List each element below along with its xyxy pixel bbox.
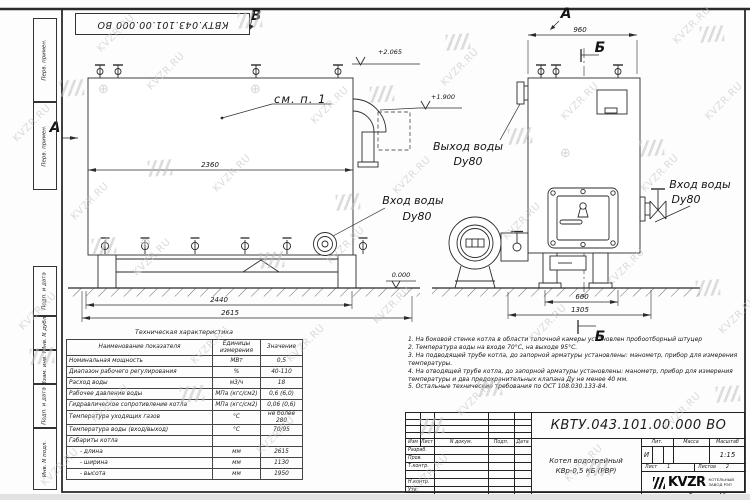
drawing-sheet: В А Б А Б см. п. 1 +2.065 +1.900 0.000 2… [0,0,750,500]
note-1: 1. На боковой стенке котла в области топ… [408,336,746,344]
sheet-cell: Лист 1 [645,463,694,471]
outlet-flange-front [500,82,528,140]
margin-box-3: Подп. и дата [33,266,57,316]
role-empty [408,470,434,478]
title-block: КВТУ.043.101.00.000 ВО Изм Лист N докум.… [405,412,745,493]
margin-box-7: Инв. N подл. [33,428,57,490]
inverted-doc-number-stamp: КВТУ.043.101.00.000 ВО [75,13,250,35]
company-name: КОТЕЛЬНЫЙ ЗАВОД РЭП [709,478,735,488]
section-b-top-label: Б [595,40,606,56]
role-tkontr: Т.контр. [408,462,434,470]
page-edge [0,494,750,500]
table-row: - высотамм1950 [67,469,303,480]
elevation-mid: +1.900 [431,93,455,101]
water-inlet-left-dn: Dy80 [403,210,432,223]
scale-header: Масштаб [709,438,746,446]
header-data: Дата [514,438,531,446]
lit-header: Лит. [641,438,673,446]
margin-box-4: Инв. N дубл. [33,316,57,350]
table-row: - ширинамм1130 [67,458,303,469]
header-list: Лист [420,438,434,446]
furnace-door [548,188,618,248]
header-podp: Подп. [488,438,514,446]
table-row: - длинамм2615 [67,447,303,458]
dim-2360-label: 2360 [201,161,219,169]
see-note-callout: см. п. 1 [274,92,326,106]
skid-front-view [539,253,612,288]
product-name: Котел водогрейный КВр-0,5 КБ (РВР) [531,438,641,494]
title-block-doc-number: КВТУ.043.101.00.000 ВО [531,413,746,438]
blower-fan [449,217,528,288]
header-ndoc: N докум. [434,438,488,446]
spec-col-name: Наименование показателя [67,340,213,356]
water-inlet-right-label: Вход воды [669,178,730,191]
water-outlet-dn: Dy80 [454,155,483,168]
spec-col-units: Единицы измерения [213,340,261,356]
margin-box-1: Перв. примен. [33,18,57,102]
note-4: 4. На отводящей трубе котла, до запорной… [408,368,746,384]
kvzr-logo-icon [653,477,665,489]
table-row: Габариты котла [67,436,303,447]
table-row: Рабочее давление водыМПа (кгс/см2)0,6 (6… [67,389,303,400]
role-prov: Пров. [408,454,434,462]
role-nkontr: Н.контр. [408,478,434,486]
sheets-cell: Листов 2 [698,463,746,471]
water-inlet-left-label: Вход воды [382,194,443,207]
technical-notes: 1. На боковой стенке котла в области топ… [408,336,746,391]
margin-box-5: Взам. инв. N [33,350,57,384]
dim-2440-label: 2440 [210,296,228,304]
table-row: Номинальная мощностьМВт0,5 [67,356,303,367]
view-a-top-label: А [561,6,572,22]
role-utv: Утв. [408,486,434,494]
water-outlet-label: Выход воды [433,140,503,153]
elevation-top: +2.065 [378,48,402,56]
inverted-doc-number: КВТУ.043.101.00.000 ВО [97,19,228,30]
table-row: Температура воды (вход/выход)°С70/95 [67,425,303,436]
dim-1305-label: 1305 [571,306,589,314]
top-valves-front-view [536,65,623,78]
lit-value: И [641,446,652,463]
boiler-side-view [68,57,462,322]
technical-characteristics-table: Техническая характеристика Наименование … [66,329,302,480]
dim-960-label: 960 [573,26,586,34]
water-inlet-right-dn: Dy80 [672,193,701,206]
dim-2615-label: 2615 [221,309,239,317]
note-5: 5. Остальные технические требования по О… [408,383,746,391]
mass-header: Масса [673,438,709,446]
table-row: Диапазон рабочего регулирования%40-110 [67,367,303,378]
table-row: Температура уходящих газов°Сне более 280 [67,411,303,425]
view-b-label: В [251,8,262,24]
margin-box-6: Подп. и дата [33,384,57,428]
note-3: 3. На подводящей трубе котла, до запорно… [408,352,746,368]
dim-660-label: 660 [575,293,588,301]
spec-col-value: Значение [261,340,303,356]
table-row: Гидравлическое сопротивление котлаМПа (к… [67,400,303,411]
margin-box-2: Перв. примен. [33,102,57,190]
elevation-zero: 0.000 [392,271,411,279]
top-valves-left-view [95,65,343,78]
kvzr-logo-text: KVZR [668,475,706,490]
scale-value: 1:15 [709,446,746,463]
company-logo-area: KVZR КОТЕЛЬНЫЙ ЗАВОД РЭП [641,471,746,494]
skid-left-view [98,255,356,288]
role-razrab: Разраб. [408,446,434,454]
table-row: Расход водым3/ч18 [67,378,303,389]
spec-table-title: Техническая характеристика [66,329,302,339]
elevation-marks [352,57,462,288]
header-izm: Изм [406,438,420,446]
note-2: 2. Температура воды на входе 70°С, на вы… [408,344,746,352]
